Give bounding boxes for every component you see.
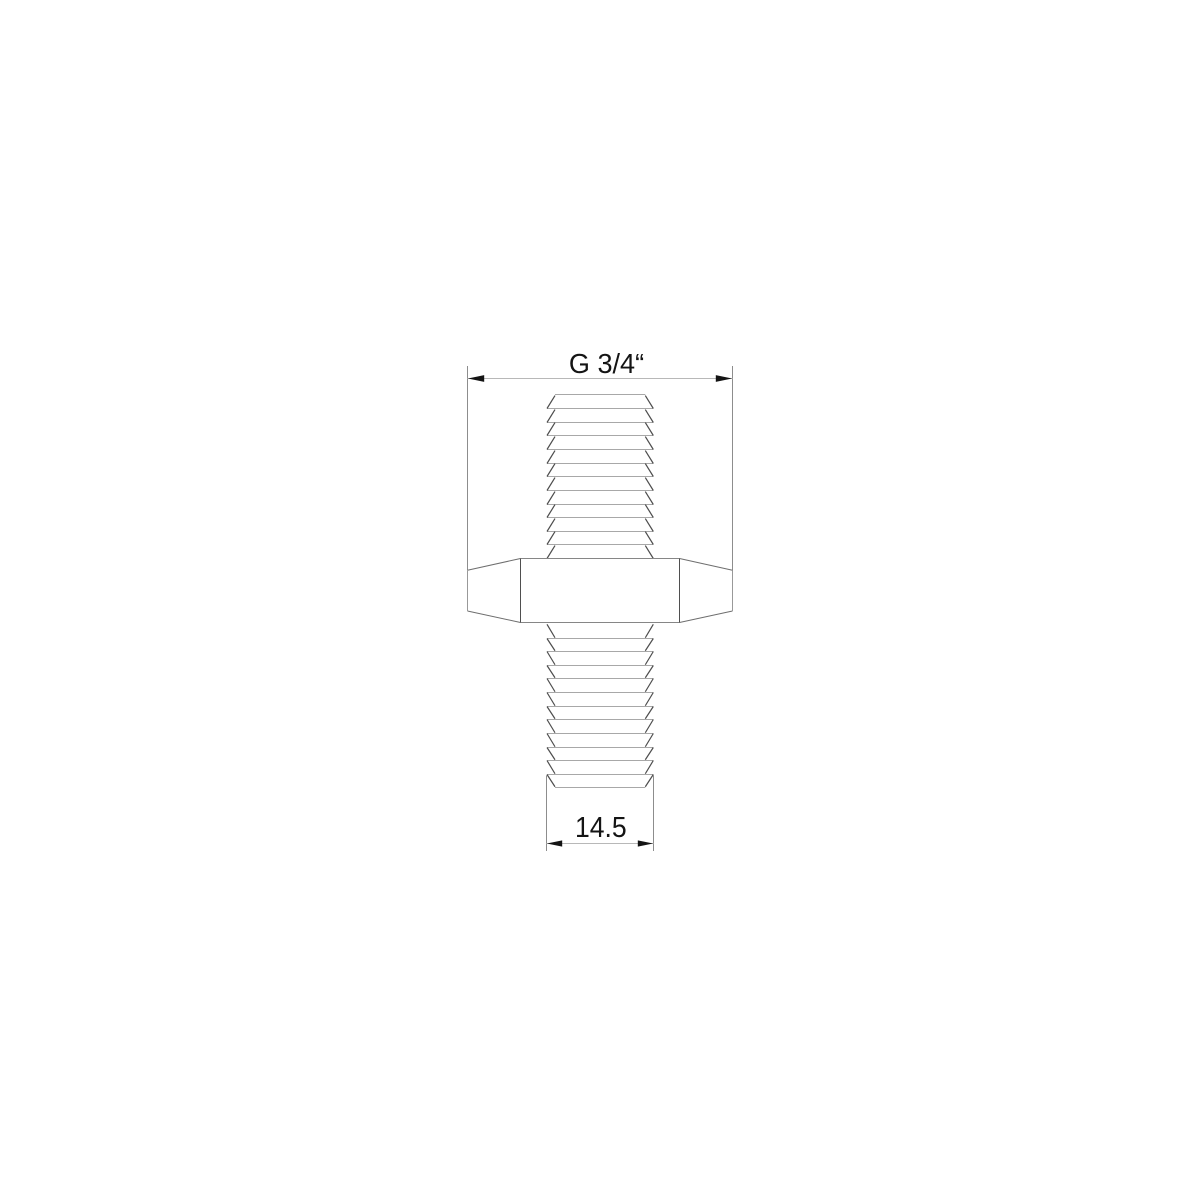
svg-text:14.5: 14.5 bbox=[575, 812, 627, 844]
svg-text:G 3/4“: G 3/4“ bbox=[569, 348, 644, 379]
